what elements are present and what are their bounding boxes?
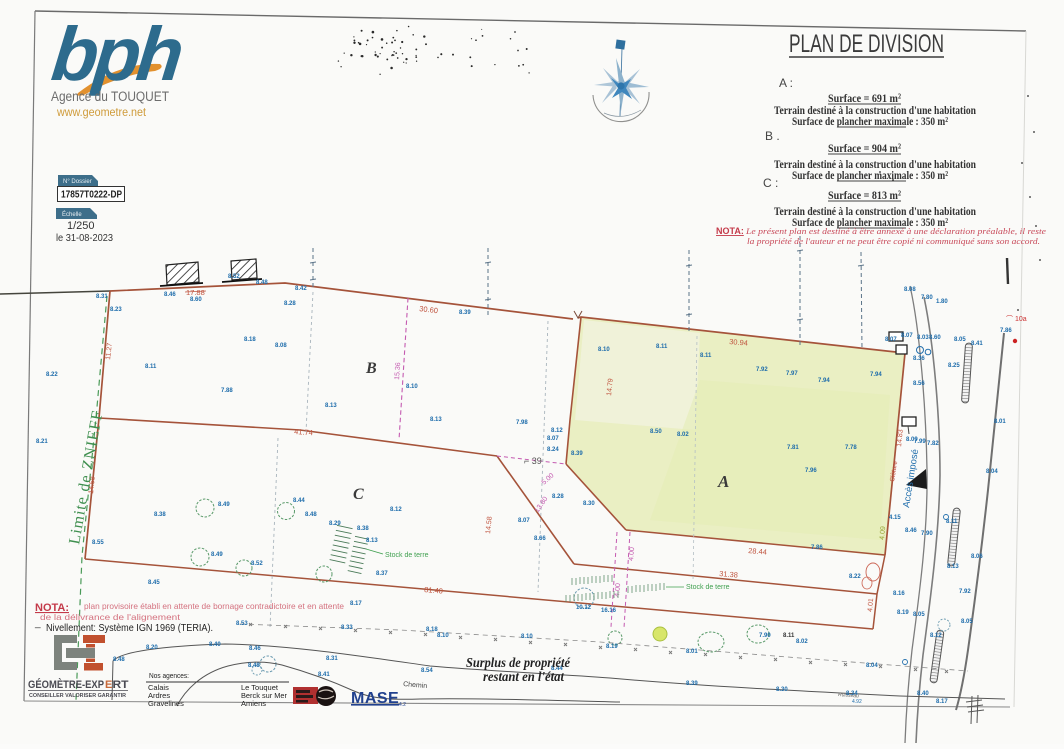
svg-text:8.38: 8.38: [357, 526, 369, 532]
svg-text:le 31-08-2023: le 31-08-2023: [56, 232, 113, 244]
svg-text:bph: bph: [48, 12, 186, 97]
svg-text:Agence du TOUQUET: Agence du TOUQUET: [51, 89, 169, 104]
svg-text:8.52: 8.52: [251, 561, 263, 567]
svg-text:8.30: 8.30: [583, 501, 595, 507]
svg-text:8.05: 8.05: [954, 337, 966, 343]
svg-text:8.23: 8.23: [110, 307, 122, 313]
svg-text:8.10: 8.10: [437, 633, 449, 639]
svg-text:8.13: 8.13: [366, 538, 378, 544]
svg-text:Stock de terre: Stock de terre: [686, 584, 730, 591]
svg-text:7.81: 7.81: [787, 445, 799, 451]
svg-text:8.49: 8.49: [211, 552, 223, 558]
svg-text:Le présent plan est destiné à: Le présent plan est destiné à être annex…: [745, 226, 1046, 236]
svg-text:8.49: 8.49: [218, 502, 230, 508]
svg-text:7.90: 7.90: [759, 633, 771, 639]
svg-text:8.40: 8.40: [917, 691, 929, 697]
svg-text:8.48: 8.48: [305, 512, 317, 518]
svg-text:8.36: 8.36: [913, 356, 925, 362]
svg-text:_: _: [34, 618, 41, 629]
svg-text:17.88: 17.88: [186, 288, 205, 297]
svg-text:8.31: 8.31: [96, 294, 108, 300]
svg-text:8.28: 8.28: [284, 301, 296, 307]
svg-text:8.66: 8.66: [534, 536, 546, 542]
svg-text:8.39: 8.39: [686, 681, 698, 687]
svg-text:8.04: 8.04: [866, 663, 878, 669]
svg-text:la propriété de l'auteur et ne: la propriété de l'auteur et ne peut être…: [747, 236, 1040, 246]
svg-text:PLAN DE DIVISION: PLAN DE DIVISION: [789, 30, 944, 58]
svg-text:8.48: 8.48: [248, 663, 260, 669]
svg-text:MASE: MASE: [351, 690, 399, 707]
svg-text:8.18: 8.18: [244, 337, 256, 343]
svg-text:4.09: 4.09: [879, 526, 887, 540]
svg-text:7.92: 7.92: [959, 589, 971, 595]
svg-text:8.12: 8.12: [930, 633, 942, 639]
svg-text:7.80: 7.80: [921, 295, 933, 301]
svg-text:⌐ 39: ⌐ 39: [524, 456, 542, 466]
svg-text:7.82: 7.82: [927, 441, 939, 447]
svg-text:CONSEILLER VALORISER GARANTIR: CONSEILLER VALORISER GARANTIR: [29, 693, 126, 699]
svg-text:7.97: 7.97: [786, 371, 798, 377]
svg-text:Surplus de propriété: Surplus de propriété: [466, 655, 571, 670]
svg-text:4.15: 4.15: [889, 515, 901, 521]
svg-text:7.86: 7.86: [1000, 328, 1012, 334]
svg-text:NOTA:: NOTA:: [716, 226, 744, 236]
svg-text:restant en l'état: restant en l'état: [483, 669, 565, 684]
svg-text:8.40: 8.40: [209, 642, 221, 648]
svg-text:Surface = 904 m²: Surface = 904 m²: [828, 141, 901, 155]
svg-text:8.45: 8.45: [148, 580, 160, 586]
svg-text:8.55: 8.55: [92, 540, 104, 546]
svg-text:8.19: 8.19: [897, 610, 909, 616]
svg-text:8.38: 8.38: [154, 512, 166, 518]
svg-text:8.33: 8.33: [341, 625, 353, 631]
svg-text:Échelle: Échelle: [62, 211, 82, 218]
svg-text:de la délivrance de l'aligneme: de la délivrance de l'alignement: [40, 612, 181, 622]
svg-text:8.09: 8.09: [906, 437, 918, 443]
svg-text:8.48: 8.48: [113, 657, 125, 663]
svg-text:8.39: 8.39: [571, 451, 583, 457]
svg-text:8.22: 8.22: [46, 372, 58, 378]
svg-text:B: B: [365, 360, 377, 377]
svg-text:8.05: 8.05: [913, 612, 925, 618]
svg-text:8.60: 8.60: [190, 297, 202, 303]
svg-text:7.96: 7.96: [805, 468, 817, 474]
svg-text:8.30: 8.30: [776, 687, 788, 693]
svg-text:16.16: 16.16: [601, 608, 617, 614]
svg-text:1/250: 1/250: [67, 220, 95, 232]
svg-text:8.10: 8.10: [406, 384, 418, 390]
svg-text:8.11: 8.11: [946, 519, 958, 525]
svg-text:8.17: 8.17: [350, 601, 362, 607]
svg-text:17857T0222-DP: 17857T0222-DP: [61, 190, 122, 201]
svg-text:8.20: 8.20: [146, 645, 158, 651]
svg-text:Surface de plancher maximale :: Surface de plancher maximale : 350 m²: [792, 170, 948, 182]
svg-text:Amiens: Amiens: [241, 699, 266, 708]
svg-text:4.01: 4.01: [867, 598, 875, 612]
svg-text:31.38: 31.38: [719, 569, 738, 580]
svg-text:8.11: 8.11: [656, 344, 668, 350]
svg-text:Nos agences:: Nos agences:: [149, 671, 189, 680]
svg-text:10.12: 10.12: [576, 605, 592, 611]
svg-text:8.60: 8.60: [929, 335, 941, 341]
svg-text:8.07: 8.07: [901, 333, 913, 339]
svg-text:8.03: 8.03: [917, 335, 929, 341]
svg-text:8.07: 8.07: [547, 436, 559, 442]
svg-text:8.42: 8.42: [295, 286, 307, 292]
svg-text:41.74: 41.74: [294, 427, 313, 437]
svg-text:4.92: 4.92: [852, 699, 862, 705]
svg-text:8.46: 8.46: [905, 528, 917, 534]
svg-text:8.41: 8.41: [971, 341, 983, 347]
svg-text:1.80: 1.80: [936, 299, 948, 305]
svg-text:15.36: 15.36: [394, 362, 402, 380]
svg-text:4.2: 4.2: [399, 702, 406, 708]
svg-text:8.56: 8.56: [913, 381, 925, 387]
svg-text:7.92: 7.92: [756, 367, 768, 373]
svg-text:8.46: 8.46: [249, 646, 261, 652]
svg-text:8.37: 8.37: [376, 571, 388, 577]
svg-text:7.90: 7.90: [921, 531, 933, 537]
svg-text:8.24: 8.24: [547, 447, 559, 453]
svg-text:A: A: [717, 472, 729, 491]
svg-text:8.06: 8.06: [971, 554, 983, 560]
svg-text:RT: RT: [113, 679, 129, 691]
svg-text:C :: C :: [763, 176, 778, 190]
svg-text:Gravelines: Gravelines: [148, 699, 184, 708]
svg-text:E: E: [105, 679, 112, 691]
svg-text:8.31: 8.31: [326, 656, 338, 662]
svg-text:8.48: 8.48: [256, 280, 268, 286]
svg-text:8.39: 8.39: [459, 310, 471, 316]
svg-text:plan provisoire établi en atte: plan provisoire établi en attente de bor…: [84, 601, 344, 611]
svg-text:8.28: 8.28: [552, 494, 564, 500]
svg-text:8.11: 8.11: [783, 633, 795, 639]
svg-text:28.44: 28.44: [748, 546, 767, 557]
svg-text:4.00: 4.00: [628, 547, 636, 561]
svg-text:8.50: 8.50: [650, 429, 662, 435]
svg-text:30.94: 30.94: [729, 337, 748, 348]
svg-text:8.08: 8.08: [904, 287, 916, 293]
svg-text:8.17: 8.17: [936, 699, 948, 705]
svg-text:8.13: 8.13: [325, 403, 337, 409]
svg-text:8.44: 8.44: [293, 498, 305, 504]
svg-text:7.94: 7.94: [870, 372, 882, 378]
svg-text:8.21: 8.21: [36, 439, 48, 445]
svg-text:8.16: 8.16: [893, 591, 905, 597]
svg-text:8.01: 8.01: [686, 649, 698, 655]
svg-text:8.10: 8.10: [521, 634, 533, 640]
svg-text:N° Dossier: N° Dossier: [63, 179, 92, 185]
svg-text:7.98: 7.98: [516, 420, 528, 426]
svg-text:8.07: 8.07: [518, 518, 530, 524]
svg-text:Nivellement: Système IGN 1969: Nivellement: Système IGN 1969 (TERIA).: [46, 623, 213, 634]
svg-text:8.19: 8.19: [606, 644, 618, 650]
svg-text:8.05: 8.05: [961, 619, 973, 625]
svg-text:C: C: [353, 486, 364, 503]
svg-text:8.10: 8.10: [598, 347, 610, 353]
svg-text:7.78: 7.78: [845, 445, 857, 451]
svg-text:8.11: 8.11: [700, 353, 712, 359]
svg-text:8.12: 8.12: [551, 428, 563, 434]
svg-text:GÉOMÈTRE-EXP: GÉOMÈTRE-EXP: [28, 678, 104, 691]
svg-text:8.53: 8.53: [236, 621, 248, 627]
svg-text:8.07: 8.07: [885, 337, 897, 343]
svg-text:8.34: 8.34: [846, 691, 858, 697]
svg-text:Surface = 691 m²: Surface = 691 m²: [828, 91, 901, 105]
svg-text:Surface = 813 m²: Surface = 813 m²: [828, 188, 901, 202]
svg-text:⌒ 10a: ⌒ 10a: [1006, 315, 1027, 323]
svg-text:8.25: 8.25: [948, 363, 960, 369]
svg-text:8.08: 8.08: [275, 343, 287, 349]
svg-text:81.40: 81.40: [424, 585, 443, 596]
svg-text:8.02: 8.02: [677, 432, 689, 438]
svg-text:8.41: 8.41: [318, 672, 330, 678]
svg-text:8.02: 8.02: [796, 639, 808, 645]
svg-text:8.46: 8.46: [164, 292, 176, 298]
svg-text:7.88: 7.88: [221, 388, 233, 394]
svg-text:A :: A :: [779, 76, 793, 90]
svg-text:8.29: 8.29: [329, 521, 341, 527]
svg-text:7.94: 7.94: [818, 378, 830, 384]
svg-text:8.54: 8.54: [421, 668, 433, 674]
svg-text:Surface de plancher maximale :: Surface de plancher maximale : 350 m²: [792, 116, 948, 128]
svg-text:www.geometre.net: www.geometre.net: [56, 107, 147, 119]
svg-text:8.18: 8.18: [426, 627, 438, 633]
svg-text:8.01: 8.01: [994, 419, 1006, 425]
svg-text:Stock de terre: Stock de terre: [385, 552, 429, 559]
svg-text:8.13: 8.13: [430, 417, 442, 423]
svg-text:8.12: 8.12: [390, 507, 402, 513]
svg-text:7.86: 7.86: [811, 545, 823, 551]
svg-text:8.04: 8.04: [986, 469, 998, 475]
svg-text:8.13: 8.13: [947, 564, 959, 570]
svg-text:8.52: 8.52: [228, 274, 240, 280]
svg-text:8.11: 8.11: [145, 364, 157, 370]
svg-text:B .: B .: [765, 129, 780, 143]
svg-text:8.22: 8.22: [849, 574, 861, 580]
